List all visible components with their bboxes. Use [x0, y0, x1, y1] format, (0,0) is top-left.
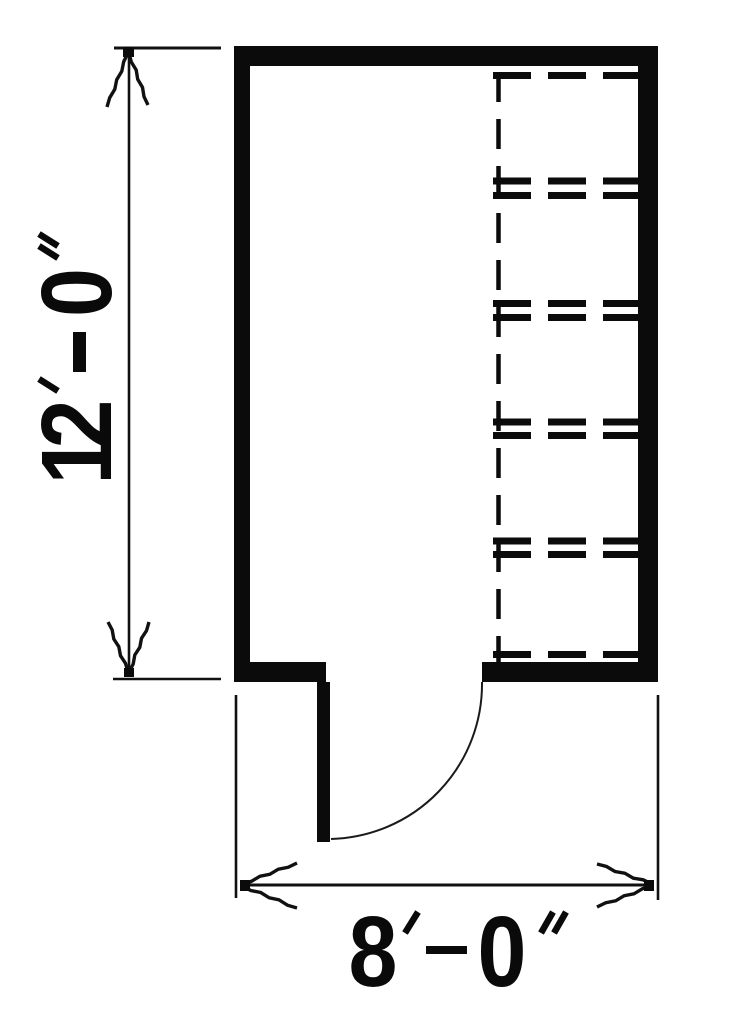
svg-text:8: 8 [349, 896, 398, 1007]
svg-text:0: 0 [478, 896, 527, 1007]
svg-text:0: 0 [21, 268, 132, 317]
svg-text:2: 2 [21, 400, 132, 449]
